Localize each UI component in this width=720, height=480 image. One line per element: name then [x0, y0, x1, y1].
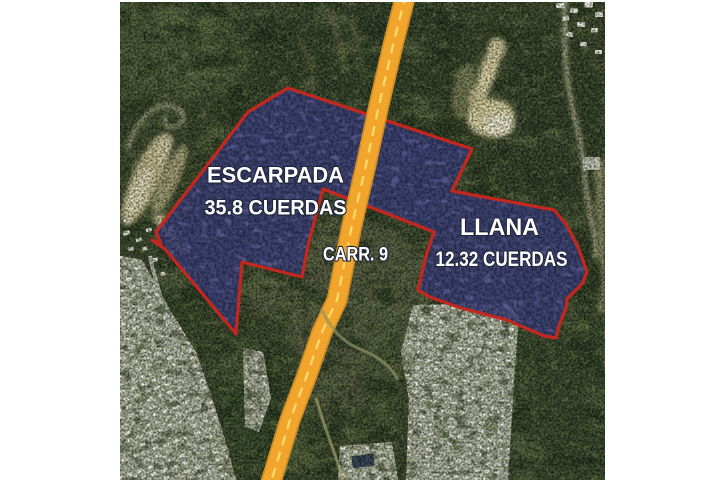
svg-text:CARR. 9: CARR. 9: [323, 245, 388, 266]
svg-text:35.8 CUERDAS: 35.8 CUERDAS: [205, 197, 347, 220]
svg-text:12.32 CUERDAS: 12.32 CUERDAS: [436, 247, 568, 271]
svg-text:LLANA: LLANA: [460, 214, 539, 241]
svg-text:ESCARPADA: ESCARPADA: [207, 163, 344, 188]
